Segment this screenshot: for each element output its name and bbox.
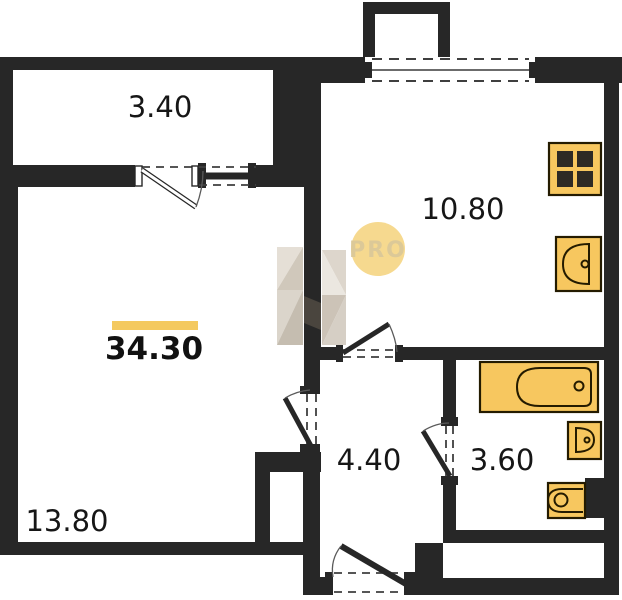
- kitchen-door: [343, 324, 397, 357]
- watermark-pro-text: PRO: [349, 238, 407, 263]
- wall-toilet-duct: [585, 478, 617, 518]
- wall-bottom-band: [415, 578, 619, 595]
- jamb-entry-left: [325, 572, 333, 578]
- watermark-pro-badge: PRO: [349, 222, 407, 276]
- jamb-bath-door-bottom: [441, 476, 458, 485]
- bathroom-door: [423, 423, 453, 476]
- kitchen-sink-icon: [556, 237, 601, 291]
- wall-bathroom-bottom: [443, 530, 604, 543]
- kitchen-area-label: 10.80: [421, 192, 504, 226]
- jamb-kitchen-window-right: [529, 62, 538, 78]
- entrance-door: [332, 546, 406, 592]
- wall-living-hall-bottom: [303, 452, 320, 595]
- balcony-area-label: 3.40: [128, 90, 193, 124]
- wall-balcony-top: [0, 57, 277, 70]
- living-room-door: [285, 390, 316, 446]
- kitchen-window: [372, 59, 529, 81]
- bathroom-area-label: 3.60: [470, 443, 535, 477]
- wall-living-bottom: [0, 542, 320, 555]
- floor-plan: 3.40 10.80 34.30 13.80 4.40 3.60 PRO: [0, 0, 622, 600]
- wall-kitchen-top-left: [321, 57, 365, 83]
- stove-icon: [549, 143, 601, 195]
- wall-loggia-right: [438, 2, 450, 57]
- wall-column: [273, 57, 321, 187]
- wall-hall-bath-top: [443, 360, 456, 425]
- toilet-icon: [548, 483, 585, 518]
- wall-loggia-top: [363, 2, 450, 14]
- floor-plan-canvas: 3.40 10.80 34.30 13.80 4.40 3.60 PRO: [0, 0, 622, 600]
- wall-entry-left: [303, 577, 333, 595]
- wall-left-outer: [0, 165, 18, 555]
- total-area-label: 34.30: [105, 331, 203, 367]
- wall-entry-step: [415, 543, 443, 578]
- total-area-accent-bar: [112, 321, 198, 330]
- hallway-area-label: 4.40: [337, 443, 402, 477]
- wall-niche-left: [255, 472, 270, 542]
- wall-kitchen-hall-right: [397, 347, 604, 360]
- balcony-door: [135, 166, 203, 207]
- living-area-label: 13.80: [25, 504, 108, 538]
- bathroom-sink-icon: [568, 422, 601, 459]
- jamb-bath-door-top: [441, 417, 458, 426]
- jamb-kitchen-window-left: [363, 62, 372, 78]
- jamb-kitchen-door-left: [336, 345, 343, 362]
- bathtub-icon: [480, 362, 598, 412]
- wall-balcony-divider-left: [0, 165, 135, 187]
